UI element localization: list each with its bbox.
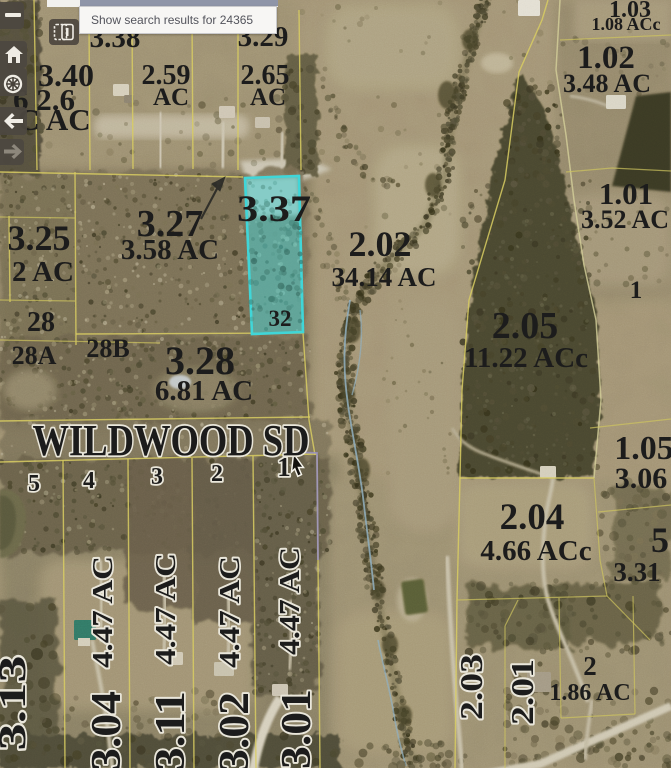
svg-text:4.47 AC: 4.47 AC bbox=[150, 553, 182, 665]
svg-text:3.25: 3.25 bbox=[8, 218, 71, 258]
svg-text:2.04: 2.04 bbox=[500, 497, 565, 538]
svg-text:AC: AC bbox=[153, 84, 189, 111]
svg-text:5: 5 bbox=[651, 520, 669, 560]
svg-text:32: 32 bbox=[269, 306, 292, 331]
svg-text:4.47 AC: 4.47 AC bbox=[274, 547, 306, 655]
svg-text:3: 3 bbox=[151, 464, 163, 490]
svg-text:3.11: 3.11 bbox=[148, 691, 194, 768]
svg-text:4: 4 bbox=[83, 468, 95, 494]
svg-text:2 AC: 2 AC bbox=[12, 256, 74, 288]
svg-text:3.37: 3.37 bbox=[237, 189, 311, 230]
svg-text:1.08 ACc: 1.08 ACc bbox=[592, 14, 661, 34]
svg-text:2: 2 bbox=[583, 651, 597, 681]
svg-text:2.02: 2.02 bbox=[349, 224, 412, 264]
svg-text:3.52 AC: 3.52 AC bbox=[581, 205, 669, 234]
svg-text:C AC: C AC bbox=[17, 102, 90, 137]
svg-text:AC: AC bbox=[250, 84, 286, 111]
svg-text:WILDWOOD SD: WILDWOOD SD bbox=[33, 416, 310, 465]
svg-text:2: 2 bbox=[211, 461, 223, 487]
svg-text:3.13: 3.13 bbox=[0, 656, 34, 751]
svg-text:3.58 AC: 3.58 AC bbox=[121, 234, 219, 266]
svg-text:3.01: 3.01 bbox=[274, 689, 320, 768]
svg-text:2.03: 2.03 bbox=[453, 654, 489, 720]
svg-text:4.66 ACc: 4.66 ACc bbox=[480, 535, 591, 567]
svg-text:3.04: 3.04 bbox=[84, 691, 130, 768]
svg-text:2.01: 2.01 bbox=[504, 659, 540, 725]
svg-text:4.47 AC: 4.47 AC bbox=[87, 556, 119, 668]
svg-text:11.22 ACc: 11.22 ACc bbox=[464, 342, 588, 374]
svg-text:1: 1 bbox=[277, 452, 291, 482]
svg-text:28B: 28B bbox=[86, 334, 129, 363]
svg-text:1.86 AC: 1.86 AC bbox=[549, 680, 630, 706]
svg-text:3.02: 3.02 bbox=[212, 692, 258, 768]
svg-text:4.47 AC: 4.47 AC bbox=[214, 556, 246, 668]
svg-text:28A: 28A bbox=[12, 341, 57, 370]
svg-text:6.81 AC: 6.81 AC bbox=[155, 375, 253, 407]
svg-text:3.06: 3.06 bbox=[615, 462, 668, 495]
svg-text:28: 28 bbox=[27, 307, 55, 338]
svg-text:3.48 AC: 3.48 AC bbox=[563, 69, 651, 98]
svg-text:2.05: 2.05 bbox=[492, 305, 559, 347]
svg-text:5: 5 bbox=[28, 471, 40, 497]
svg-text:34.14 AC: 34.14 AC bbox=[331, 262, 436, 292]
svg-text:3.31: 3.31 bbox=[613, 557, 660, 587]
svg-text:1: 1 bbox=[630, 277, 643, 304]
